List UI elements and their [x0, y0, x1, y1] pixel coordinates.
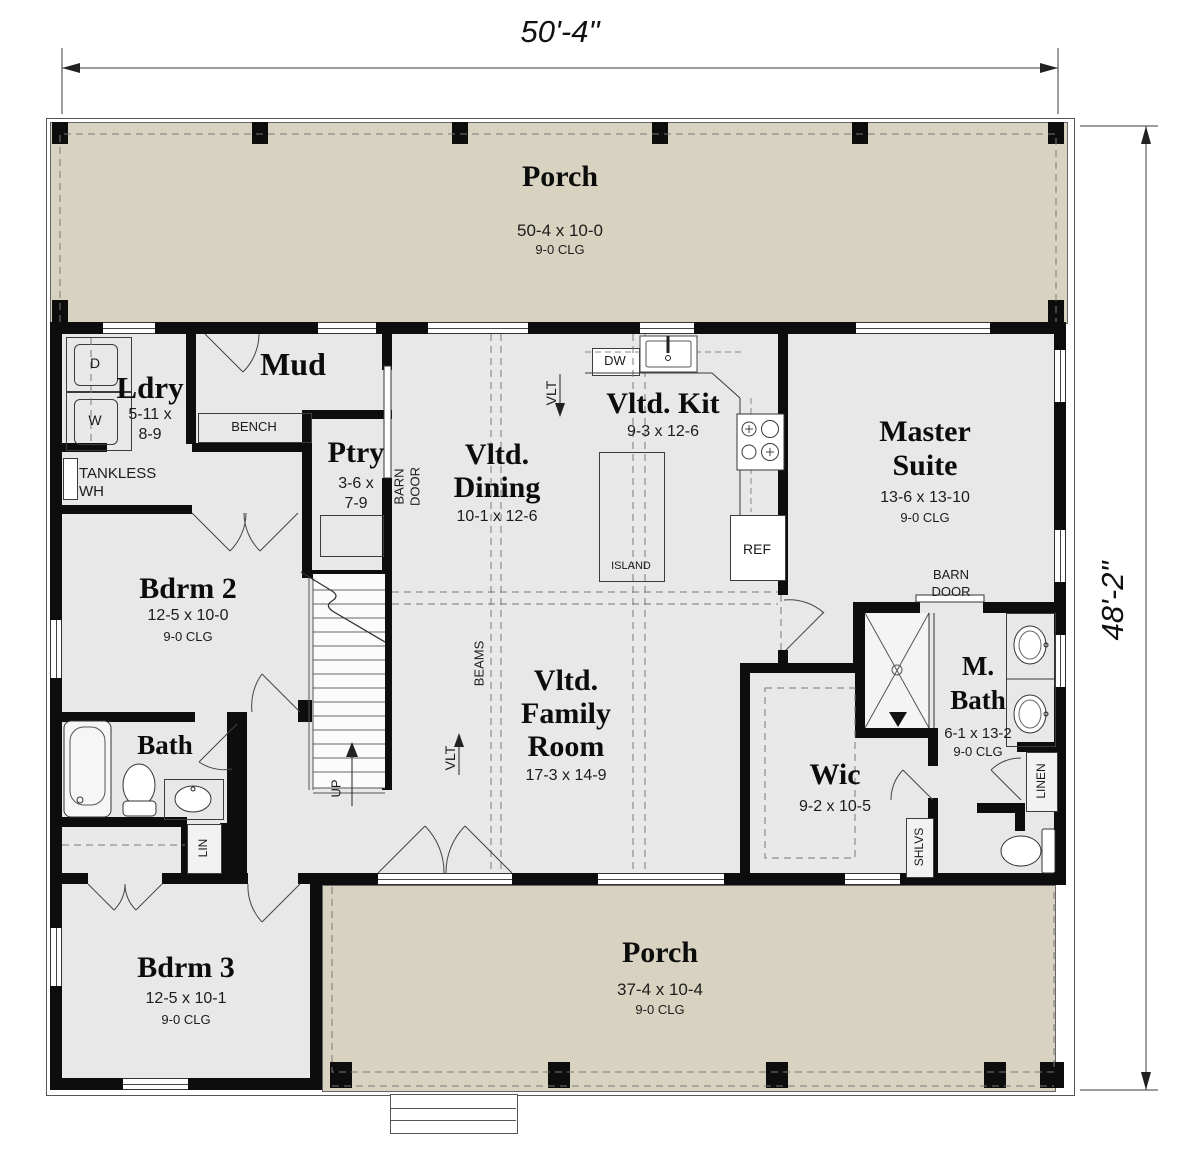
tankless-label-2: WH	[79, 484, 104, 499]
room-size-ptry-2: 7-9	[316, 496, 396, 512]
room-label-master-2: Suite	[845, 451, 1005, 481]
shlvs-label: SHLVS	[913, 797, 925, 897]
room-clg-bdrm3: 9-0 CLG	[126, 1013, 246, 1026]
room-label-mud: Mud	[223, 348, 363, 380]
room-size-bdrm3: 12-5 x 10-1	[106, 991, 266, 1007]
up-label: UP	[330, 739, 343, 839]
room-clg-porch-bottom: 9-0 CLG	[600, 1003, 720, 1016]
room-label-porch-top: Porch	[460, 162, 660, 192]
room-label-porch-bottom: Porch	[580, 938, 740, 968]
dryer-label: D	[74, 356, 116, 370]
stairs	[301, 572, 385, 806]
room-clg-porch-top: 9-0 CLG	[500, 243, 620, 256]
room-label-family-2: Family	[486, 699, 646, 729]
room-label-bdrm3: Bdrm 3	[101, 953, 271, 983]
room-size-family: 17-3 x 14-9	[486, 768, 646, 784]
room-label-dining-1: Vltd.	[427, 440, 567, 470]
room-clg-bdrm2: 9-0 CLG	[128, 630, 248, 643]
room-size-porch-top: 50-4 x 10-0	[480, 222, 640, 239]
linen-label: LINEN	[1035, 731, 1047, 831]
dishwasher-label: DW	[592, 354, 638, 367]
room-size-wic: 9-2 x 10-5	[765, 799, 905, 815]
barn-door-label-v1: BARN	[393, 437, 406, 537]
room-size-dining: 10-1 x 12-6	[427, 509, 567, 525]
lin-label: LIN	[197, 798, 209, 898]
room-size-mbath: 6-1 x 13-2	[918, 726, 1038, 741]
room-label-ptry: Ptry	[306, 438, 406, 468]
beams-label: BEAMS	[473, 614, 486, 714]
room-label-bath: Bath	[105, 732, 225, 759]
porch-step-line	[390, 1108, 516, 1109]
room-size-ptry-1: 3-6 x	[316, 476, 396, 492]
room-label-dining-2: Dining	[417, 473, 577, 503]
barn-door-label-h2: DOOR	[911, 585, 991, 598]
room-size-porch-bottom: 37-4 x 10-4	[580, 981, 740, 998]
porch-step-line	[390, 1120, 516, 1121]
room-clg-mbath: 9-0 CLG	[928, 745, 1028, 758]
room-label-wic: Wic	[765, 760, 905, 790]
tankless-label-1: TANKLESS	[79, 466, 156, 481]
room-size-kitchen: 9-3 x 12-6	[593, 424, 733, 440]
room-label-kitchen: Vltd. Kit	[573, 389, 753, 419]
room-label-family-1: Vltd.	[486, 666, 646, 696]
washer-label: W	[74, 413, 116, 427]
room-label-bdrm2: Bdrm 2	[108, 574, 268, 604]
vlt-label-dining: VLT	[544, 343, 558, 443]
barn-door-label-h1: BARN	[911, 568, 991, 581]
vlt-label-family: VLT	[443, 708, 457, 808]
refrigerator-label: REF	[730, 542, 784, 556]
room-size-ldry-2: 8-9	[100, 427, 200, 443]
dimension-height-label: 48'-2"	[1095, 501, 1131, 701]
island-label: ISLAND	[599, 561, 663, 572]
room-size-master: 13-6 x 13-10	[845, 490, 1005, 506]
room-label-mbath-2: Bath	[918, 687, 1038, 714]
dimension-width-label: 50'-4"	[460, 14, 660, 50]
room-label-master-1: Master	[845, 417, 1005, 447]
room-size-bdrm2: 12-5 x 10-0	[108, 608, 268, 624]
dimension-top	[62, 48, 1058, 114]
floor-plan-canvas: 50'-4" 48'-2" Porch 50-4 x 10-0 9-0 CLG …	[0, 0, 1200, 1173]
bench-label: BENCH	[198, 420, 310, 433]
room-clg-master: 9-0 CLG	[865, 511, 985, 524]
room-label-mbath-1: M.	[928, 653, 1028, 680]
room-label-family-3: Room	[486, 732, 646, 762]
room-label-ldry: Ldry	[90, 372, 210, 403]
